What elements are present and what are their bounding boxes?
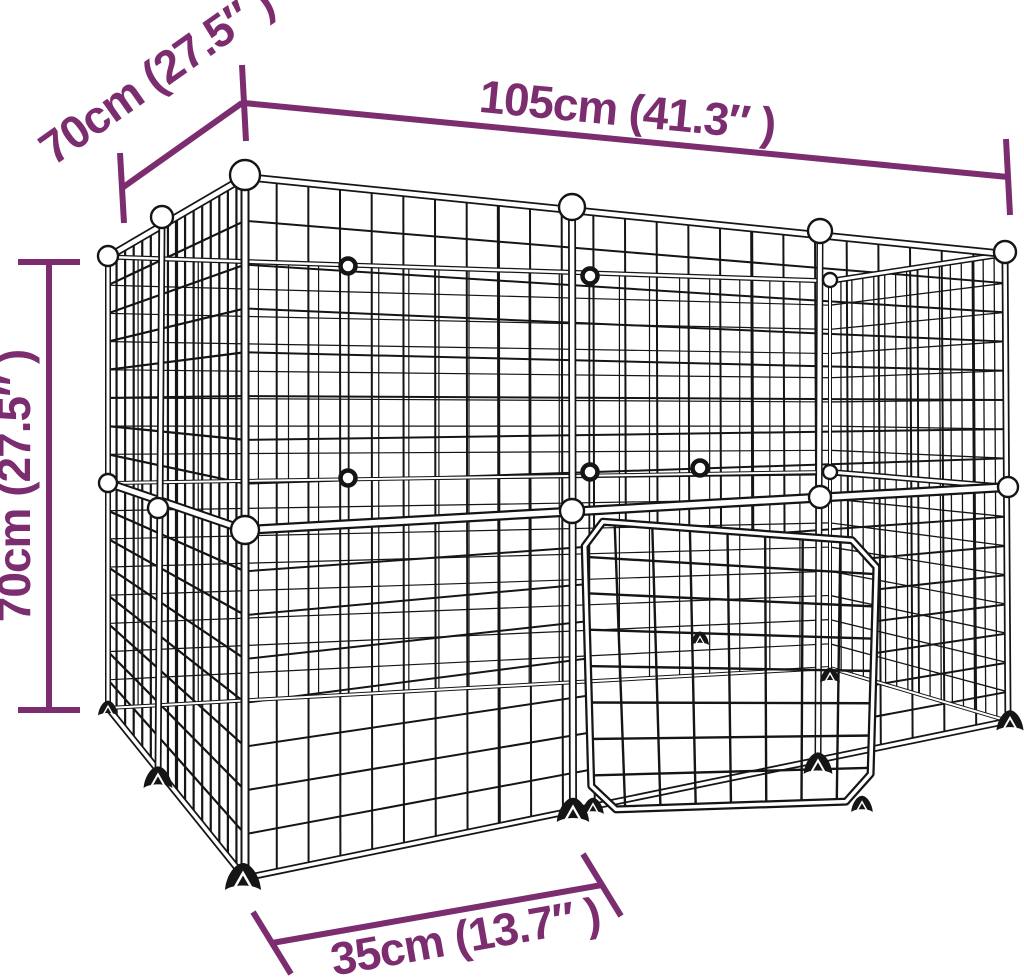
foot xyxy=(851,796,873,812)
dimension-height-label: 70cm (27.5″ ) xyxy=(0,350,40,622)
dimension-tick xyxy=(242,65,246,141)
ball-connector xyxy=(151,206,173,228)
dimension-tick xyxy=(120,153,124,223)
product-dimension-diagram: 105cm (41.3″ ) 70cm (27.5″ ) 70cm (27.5″… xyxy=(0,0,1024,980)
ball-connector xyxy=(808,219,832,243)
ball-connector xyxy=(559,194,585,220)
pet-cage-illustration xyxy=(98,160,1024,890)
door-mesh xyxy=(577,520,878,812)
dimension-door: 35cm (13.7″ ) xyxy=(253,854,621,980)
ball-connector xyxy=(99,474,117,492)
ball-connector xyxy=(98,246,118,266)
ball-connector xyxy=(809,486,831,508)
ball-connector xyxy=(560,499,584,523)
ball-connector xyxy=(994,241,1016,263)
dimension-tick xyxy=(1006,139,1010,215)
dimension-height: 70cm (27.5″ ) xyxy=(0,262,80,710)
ball-connector xyxy=(998,477,1018,497)
dimension-width: 105cm (41.3″ ) xyxy=(242,65,1010,215)
ball-connector xyxy=(148,498,168,518)
ball-connector xyxy=(823,273,837,287)
ball-connector xyxy=(231,516,259,544)
dimension-door-label: 35cm (13.7″ ) xyxy=(327,887,604,980)
foot xyxy=(997,710,1024,730)
ball-connector xyxy=(823,465,837,479)
ball-connector xyxy=(230,160,260,190)
foot xyxy=(225,863,261,890)
